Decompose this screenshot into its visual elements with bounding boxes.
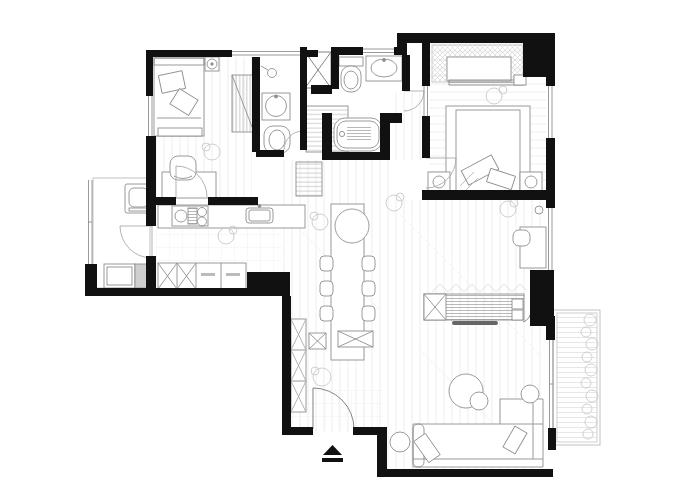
foot-bench xyxy=(158,128,202,136)
desk-chair xyxy=(513,230,530,246)
cabinet-micro-label xyxy=(226,273,240,276)
dining-chair xyxy=(362,256,375,271)
entrance-bar xyxy=(322,458,343,462)
dining-chair xyxy=(320,256,333,271)
dining-chair xyxy=(362,281,375,296)
faucet xyxy=(275,95,278,98)
low-storage-cabinet xyxy=(296,162,322,196)
floor-plan xyxy=(0,0,700,495)
corridor-floor xyxy=(392,93,422,160)
nightstand-right xyxy=(520,172,542,192)
nightstand-left xyxy=(428,172,450,192)
sliding-door xyxy=(449,80,524,85)
wardrobe-rod xyxy=(447,57,511,81)
floor-plan-canvas xyxy=(0,0,700,495)
dining-chair xyxy=(362,306,375,321)
dining-chair xyxy=(320,281,333,296)
faucet xyxy=(258,205,261,208)
toilet-tank xyxy=(339,57,363,66)
balcony xyxy=(553,310,600,445)
lamp-center xyxy=(211,63,213,65)
tv xyxy=(452,321,498,325)
bathtub-mat xyxy=(347,127,371,142)
pouf xyxy=(390,432,410,452)
kitchen-counter xyxy=(158,205,305,228)
shelf-box xyxy=(512,310,523,320)
side-table xyxy=(521,385,539,403)
duct-shaft xyxy=(305,52,331,88)
coffee-table-small xyxy=(470,392,488,410)
cabinet-micro-label xyxy=(201,273,215,276)
shelf-box xyxy=(512,299,523,309)
cooktop-grate xyxy=(188,208,197,224)
dining-chair xyxy=(320,306,333,321)
laundry-counter xyxy=(104,264,135,288)
faucet xyxy=(383,59,386,62)
round-table-end xyxy=(335,209,369,243)
